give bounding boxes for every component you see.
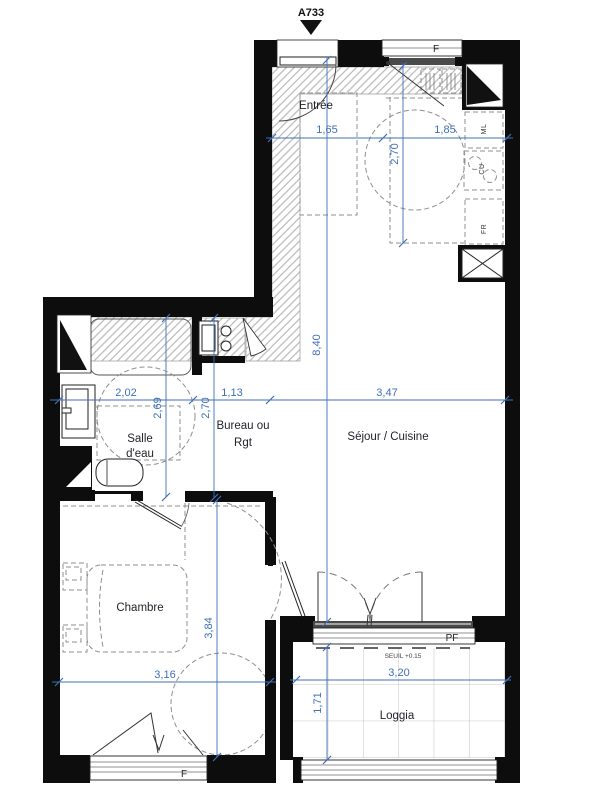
dim-bureau-depth: 2,70: [200, 397, 212, 418]
dim-loggia-depth: 1,71: [312, 692, 324, 713]
room-label-chambre: Chambre: [116, 602, 163, 614]
dim-entree-width: 1,65: [316, 124, 337, 136]
kitchen-window-sill: [388, 58, 458, 65]
dim-cuisine-width: 1,85: [434, 124, 455, 136]
heater-circle: [221, 341, 231, 351]
dim-loggia-width: 3,20: [388, 667, 409, 679]
dim-salle-eau-depth: 2,69: [152, 397, 164, 418]
loggia-tiles: [293, 648, 505, 758]
shaft: [458, 245, 507, 282]
window-chambre-label: F: [181, 769, 187, 780]
dim-chambre-depth: 3,84: [203, 617, 215, 638]
threshold-label: SEUIL +0.15: [385, 653, 422, 660]
toilet: [96, 459, 143, 486]
dim-cuisine-depth: 2,70: [389, 143, 401, 164]
dim-sejour-length: 8,40: [311, 334, 323, 355]
floor-plan-drawing: 1,65 1,85 2,70 8,40 3,47 2,02 1,13 2,69 …: [0, 0, 602, 800]
dim-sejour-width: 3,47: [376, 387, 397, 399]
entrance-marker-label: A733: [298, 7, 324, 19]
shower-hatch: [88, 317, 192, 361]
porte-fenetre-label: PF: [446, 633, 459, 644]
window-top-label: F: [433, 44, 439, 55]
room-label-bureau-1: Bureau ou: [216, 420, 269, 432]
room-label-sejour: Séjour / Cuisine: [347, 431, 428, 443]
fridge-label: FR: [481, 224, 488, 234]
dim-chambre-width: 3,16: [154, 669, 175, 681]
room-label-salle-eau-2: d'eau: [126, 448, 154, 460]
room-label-salle-eau-1: Salle: [127, 433, 153, 445]
entry-door-leaf: [280, 57, 336, 65]
floor-plan-page: 1,65 1,85 2,70 8,40 3,47 2,02 1,13 2,69 …: [0, 0, 602, 800]
chambre-window: [90, 756, 207, 780]
room-label-entree: Entrée: [299, 100, 333, 112]
dim-bureau-width: 1,13: [221, 387, 242, 399]
room-label-bureau-2: Rgt: [234, 437, 253, 449]
heater-circle: [221, 326, 231, 336]
washer-label: ML: [481, 124, 488, 135]
cooktop-label: CU: [479, 163, 486, 174]
room-label-loggia: Loggia: [380, 710, 415, 722]
washbasin-handle: [62, 408, 71, 413]
dim-salle-eau-width: 2,02: [115, 387, 136, 399]
